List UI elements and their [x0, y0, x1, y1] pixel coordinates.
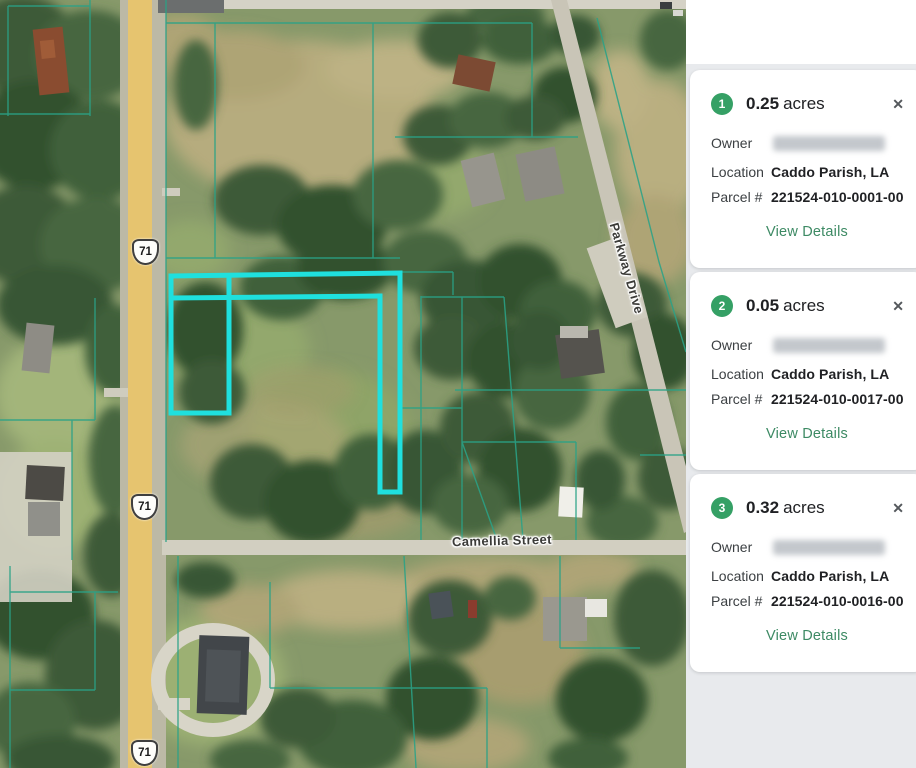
street-name-label-camellia: Camellia Street [452, 532, 552, 550]
acreage-unit: acres [783, 296, 825, 315]
parcel-index-badge: 2 [711, 295, 733, 317]
acreage-value: 0.32 [746, 498, 779, 517]
parcel-number-label: Parcel # [711, 189, 771, 205]
parcel-card-header: 3 0.32acres ✕ [690, 474, 916, 519]
location-row: Location Caddo Parish, LA [690, 568, 916, 584]
selected-parcel-outline-inner [171, 296, 380, 298]
parcel-acreage: 0.32acres [746, 498, 825, 518]
parcel-card-header: 2 0.05acres ✕ [690, 272, 916, 317]
map-canvas[interactable]: Camellia Street Parkway Drive 71 71 71 [0, 0, 686, 768]
close-icon[interactable]: ✕ [890, 498, 906, 519]
owner-row: Owner [690, 135, 916, 151]
parcel-number-value: 221524-010-0001-00 [771, 189, 904, 205]
location-label: Location [711, 568, 771, 584]
owner-row: Owner [690, 539, 916, 555]
parcel-card-3: 3 0.32acres ✕ Owner Location Caddo Paris… [690, 474, 916, 672]
parcel-acreage: 0.25acres [746, 94, 825, 114]
location-label: Location [711, 366, 771, 382]
parcel-index-badge: 1 [711, 93, 733, 115]
location-value: Caddo Parish, LA [771, 164, 889, 180]
location-row: Location Caddo Parish, LA [690, 366, 916, 382]
view-details-link[interactable]: View Details [690, 224, 916, 240]
parcel-number-row: Parcel # 221524-010-0016-00 [690, 593, 916, 609]
view-details-link[interactable]: View Details [690, 426, 916, 442]
owner-label: Owner [711, 135, 769, 151]
parcel-results-sidebar: 1 0.25acres ✕ Owner Location Caddo Paris… [686, 0, 916, 768]
parcel-number-label: Parcel # [711, 391, 771, 407]
owner-value-redacted [773, 136, 885, 151]
parcel-number-row: Parcel # 221524-010-0001-00 [690, 189, 916, 205]
close-icon[interactable]: ✕ [890, 94, 906, 115]
sidebar-top-panel [686, 0, 916, 64]
acreage-value: 0.05 [746, 296, 779, 315]
close-icon[interactable]: ✕ [890, 296, 906, 317]
parcel-number-value: 221524-010-0016-00 [771, 593, 904, 609]
parcel-number-row: Parcel # 221524-010-0017-00 [690, 391, 916, 407]
parcel-card-1: 1 0.25acres ✕ Owner Location Caddo Paris… [690, 70, 916, 268]
location-row: Location Caddo Parish, LA [690, 164, 916, 180]
owner-label: Owner [711, 539, 769, 555]
parcel-card-header: 1 0.25acres ✕ [690, 70, 916, 115]
view-details-link[interactable]: View Details [690, 628, 916, 644]
location-value: Caddo Parish, LA [771, 568, 889, 584]
parcel-number-value: 221524-010-0017-00 [771, 391, 904, 407]
parcel-acreage: 0.05acres [746, 296, 825, 316]
owner-value-redacted [773, 338, 885, 353]
parcel-number-label: Parcel # [711, 593, 771, 609]
acreage-unit: acres [783, 498, 825, 517]
owner-row: Owner [690, 337, 916, 353]
location-value: Caddo Parish, LA [771, 366, 889, 382]
location-label: Location [711, 164, 771, 180]
acreage-unit: acres [783, 94, 825, 113]
parcel-index-badge: 3 [711, 497, 733, 519]
satellite-imagery [0, 0, 686, 768]
owner-label: Owner [711, 337, 769, 353]
acreage-value: 0.25 [746, 94, 779, 113]
owner-value-redacted [773, 540, 885, 555]
parcel-viewer-app: Camellia Street Parkway Drive 71 71 71 1… [0, 0, 916, 768]
parcel-card-2: 2 0.05acres ✕ Owner Location Caddo Paris… [690, 272, 916, 470]
